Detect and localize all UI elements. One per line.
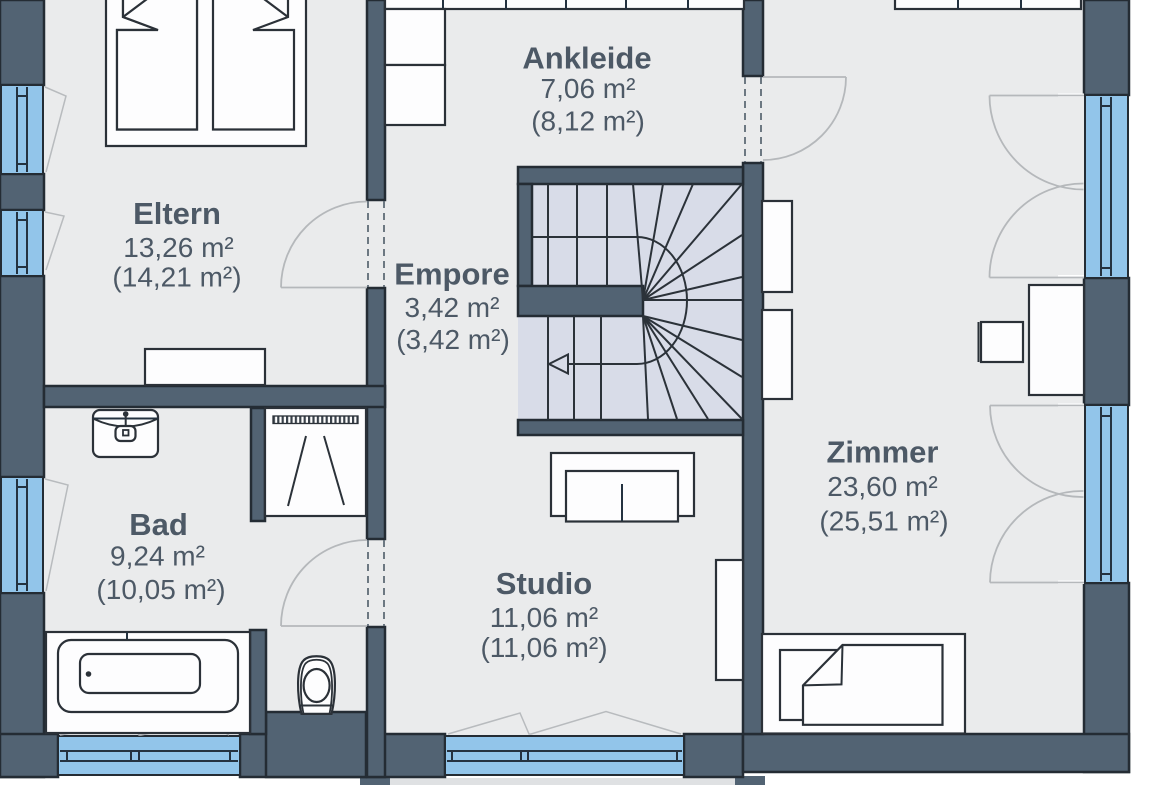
svg-text:(25,51 m²): (25,51 m²) xyxy=(819,506,948,537)
svg-text:11,06 m²: 11,06 m² xyxy=(490,602,598,633)
svg-text:(14,21 m²): (14,21 m²) xyxy=(112,262,241,293)
svg-text:Eltern: Eltern xyxy=(133,196,221,231)
svg-text:Empore: Empore xyxy=(394,256,509,291)
svg-text:(8,12 m²): (8,12 m²) xyxy=(531,106,645,137)
svg-text:(10,05 m²): (10,05 m²) xyxy=(96,574,225,605)
svg-text:Bad: Bad xyxy=(129,507,188,542)
svg-text:13,26 m²: 13,26 m² xyxy=(123,232,234,263)
svg-text:Zimmer: Zimmer xyxy=(827,434,939,469)
svg-text:3,42 m²: 3,42 m² xyxy=(405,292,500,323)
svg-text:Studio: Studio xyxy=(496,566,592,601)
svg-text:(11,06 m²): (11,06 m²) xyxy=(480,632,607,663)
svg-text:23,60 m²: 23,60 m² xyxy=(827,471,938,502)
svg-text:7,06 m²: 7,06 m² xyxy=(541,73,636,104)
svg-text:(3,42 m²): (3,42 m²) xyxy=(396,324,510,355)
svg-text:Ankleide: Ankleide xyxy=(522,40,651,75)
svg-text:9,24 m²: 9,24 m² xyxy=(110,541,205,572)
